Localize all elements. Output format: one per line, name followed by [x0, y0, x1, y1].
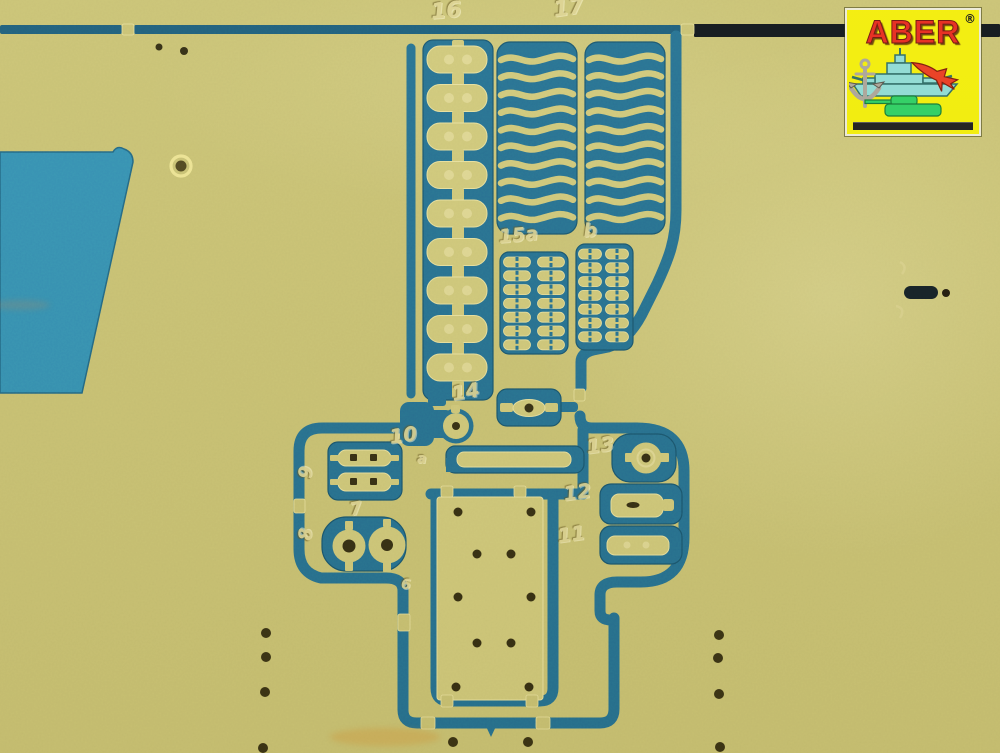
etched-label-14: 14 [450, 379, 481, 404]
anchor-icon [849, 60, 884, 106]
etched-label-6: 6 [401, 578, 411, 592]
aber-logo-text: ABER [847, 14, 979, 51]
etched-label-17: 17 [552, 0, 585, 22]
etched-label-12: 12 [562, 480, 592, 504]
etched-label-b: b [583, 221, 598, 241]
registered-trademark: ® [964, 12, 976, 26]
aber-logo-art [849, 48, 975, 120]
etched-label-11: 11 [556, 522, 586, 546]
etched-label-13: 13 [585, 433, 615, 457]
photo-etched-fret-photo: 161715ab1410a1312119786 ABER ® [0, 0, 1000, 753]
etched-label-16: 16 [430, 0, 462, 24]
etched-label-15a: 15a [498, 225, 539, 247]
aber-logo-baseline [853, 122, 973, 130]
etched-label-a: a [417, 452, 426, 466]
etched-label-10: 10 [388, 423, 418, 447]
etched-label-8: 8 [297, 527, 316, 541]
etched-label-9: 9 [297, 465, 316, 479]
tank-icon [865, 96, 941, 116]
aber-logo: ABER ® [845, 8, 981, 136]
